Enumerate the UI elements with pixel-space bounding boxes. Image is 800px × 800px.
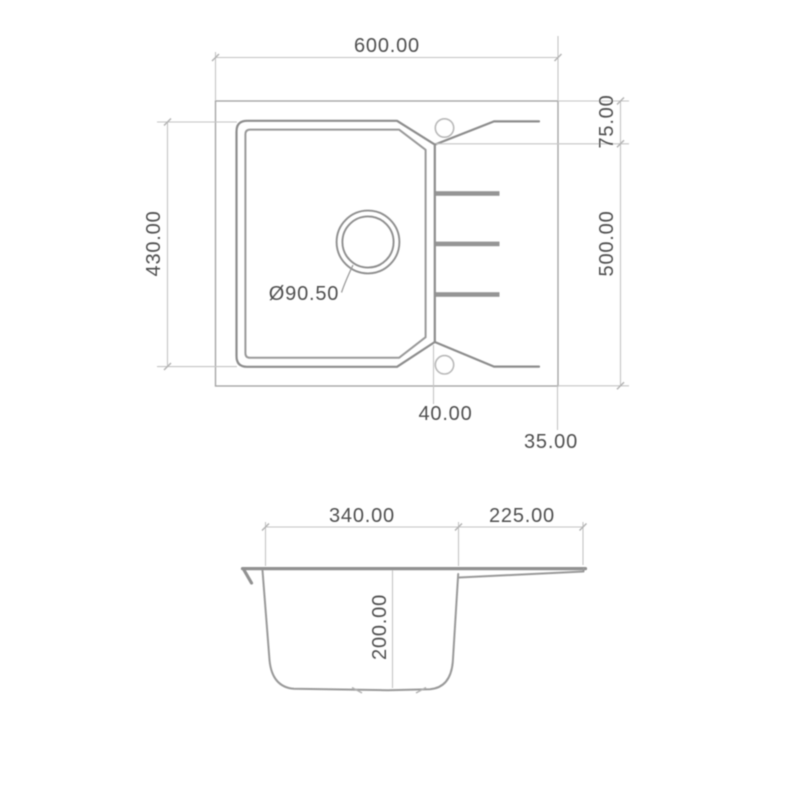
dim-tap-hole-offset: 40.00	[418, 345, 472, 425]
drainer-groove	[436, 191, 500, 196]
dim-rim-depth: 430.00	[143, 119, 237, 371]
tap-hole-bottom	[435, 356, 453, 374]
bowl-depth-label: 200.00	[369, 594, 391, 660]
sink-technical-drawing: Ø90.50 600.00 430.00	[0, 0, 800, 800]
dim-overall-width: 600.00	[212, 35, 562, 100]
drain-diameter-label: Ø90.50	[269, 283, 339, 305]
dim-edge-offset: 35.00	[524, 386, 578, 453]
bowl-width-label: 340.00	[329, 505, 395, 527]
drainer-groove	[436, 292, 500, 297]
drain-recess-circle	[337, 211, 400, 274]
overall-width-label: 600.00	[354, 35, 420, 57]
drainer-width-label: 225.00	[489, 505, 555, 527]
overall-depth-label: 500.00	[596, 211, 618, 277]
bowl-section-profile	[263, 571, 459, 691]
edge-offset-label: 35.00	[524, 431, 578, 453]
top-view: Ø90.50 600.00 430.00	[143, 35, 629, 453]
drainer-ledge-label: 75.00	[596, 94, 618, 148]
section-view: 340.00 225.00 200.00	[243, 505, 587, 693]
drain-hole-circle	[342, 216, 393, 267]
rim-front-edge	[244, 570, 252, 583]
drainer-edge-bottom	[435, 342, 539, 367]
tap-hole-offset-label: 40.00	[418, 403, 472, 425]
drainer-edge-top	[435, 121, 539, 144]
dim-section-widths: 340.00 225.00	[262, 505, 587, 566]
drain-leader-line	[342, 265, 354, 293]
drawing-page: Ø90.50 600.00 430.00	[0, 0, 800, 800]
tap-hole-top	[435, 119, 453, 137]
drainer-groove	[436, 242, 500, 247]
bowl-outer-rim	[237, 121, 435, 367]
dim-bowl-depth: 200.00	[369, 570, 393, 688]
rim-depth-label: 430.00	[143, 211, 165, 277]
